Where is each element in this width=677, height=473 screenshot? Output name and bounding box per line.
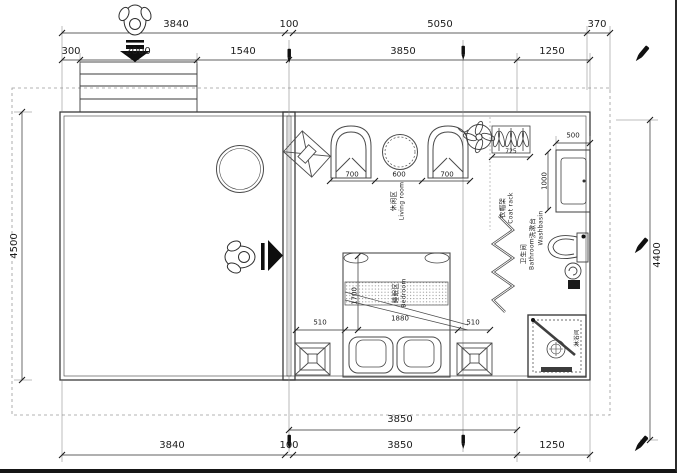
pen-marker-icons	[288, 45, 650, 452]
dim-bed-1880: 1880	[391, 316, 409, 323]
folding-partition	[493, 216, 513, 312]
dim-basin-500: 500	[566, 133, 579, 140]
floor-plan-page: 3840 100 5050 370 300 2000 1540 3850 125…	[0, 0, 677, 473]
dim-top-5050: 5050	[427, 20, 452, 30]
dim-top-2000: 2000	[125, 47, 150, 57]
nightstand-left	[295, 343, 330, 375]
dim-bottom-100: 100	[279, 441, 298, 451]
dim-chair-700b: 700	[440, 172, 453, 179]
label-washbasin: 洗漱台 Washbasin	[530, 211, 545, 246]
entry-steps	[80, 62, 197, 112]
axis-grid	[289, 40, 463, 452]
label-coatrack-en: Coat rack	[507, 192, 514, 223]
tea-table	[383, 135, 418, 170]
arrow-right-icon	[261, 240, 283, 271]
walk-person-icon	[225, 239, 255, 275]
dim-bottom-3840: 3840	[159, 441, 184, 451]
dim-basin-1000: 1000	[542, 172, 549, 190]
dim-table-600: 600	[392, 172, 405, 179]
label-shower-zh: 淋浴间	[575, 329, 582, 346]
dim-bottom-3850b: 3850	[387, 441, 412, 451]
label-washbasin-en: Washbasin	[537, 211, 544, 246]
dimension-ticks	[19, 30, 653, 458]
label-washbasin-zh: 洗漱台	[530, 211, 538, 246]
dim-bottom-3850a: 3850	[387, 415, 412, 425]
dim-bed-510a: 510	[313, 320, 326, 327]
label-bathroom-zh: 卫生间	[521, 238, 529, 270]
dim-bed-1700: 1700	[352, 287, 359, 305]
dim-top-3840: 3840	[163, 20, 188, 30]
nightstand-right	[457, 343, 492, 375]
label-bedroom-zh: 睡眠区	[393, 278, 401, 307]
bed-pillow-right	[397, 337, 441, 373]
label-coatrack-zh: 衣帽架	[500, 192, 508, 223]
dim-bottom-1250: 1250	[539, 441, 564, 451]
dim-top-1540: 1540	[230, 47, 255, 57]
dim-top-3850: 3850	[390, 47, 415, 57]
dim-top-300: 300	[61, 47, 80, 57]
toilet	[548, 233, 588, 262]
washbasin	[556, 150, 590, 212]
dim-top-100: 100	[279, 20, 298, 30]
bed-pillow-left	[349, 337, 393, 373]
extension-lines	[14, 26, 658, 462]
dim-coatrack-725: 725	[505, 149, 516, 155]
dim-top-1250: 1250	[539, 47, 564, 57]
dimension-lines	[22, 33, 650, 455]
pen-icon	[634, 45, 650, 62]
entry-person-icon	[117, 5, 153, 35]
round-table	[217, 146, 264, 193]
dim-bed-510b: 510	[466, 320, 479, 327]
label-living-zh: 休闲区	[391, 182, 399, 221]
dim-chair-700a: 700	[345, 172, 358, 179]
label-living-en: Living room	[398, 182, 405, 221]
pen-icon	[633, 237, 649, 254]
floor-plan-drawing	[0, 0, 677, 473]
axis-marker-icon	[462, 435, 465, 449]
label-living-room: 休闲区 Living room	[391, 182, 406, 221]
dim-top-370: 370	[587, 20, 606, 30]
side-table	[284, 131, 331, 177]
dim-right-4400: 4400	[653, 242, 663, 267]
label-coat-rack: 衣帽架 Coat rack	[500, 192, 515, 223]
label-bedroom: 睡眠区 Bedroom	[393, 278, 408, 307]
dim-left-4500: 4500	[10, 233, 20, 258]
axis-marker-icon	[462, 46, 465, 60]
label-shower: 淋浴间	[575, 329, 582, 346]
label-bedroom-en: Bedroom	[400, 278, 407, 307]
floor-drain	[565, 263, 581, 289]
pen-icon	[633, 435, 649, 452]
